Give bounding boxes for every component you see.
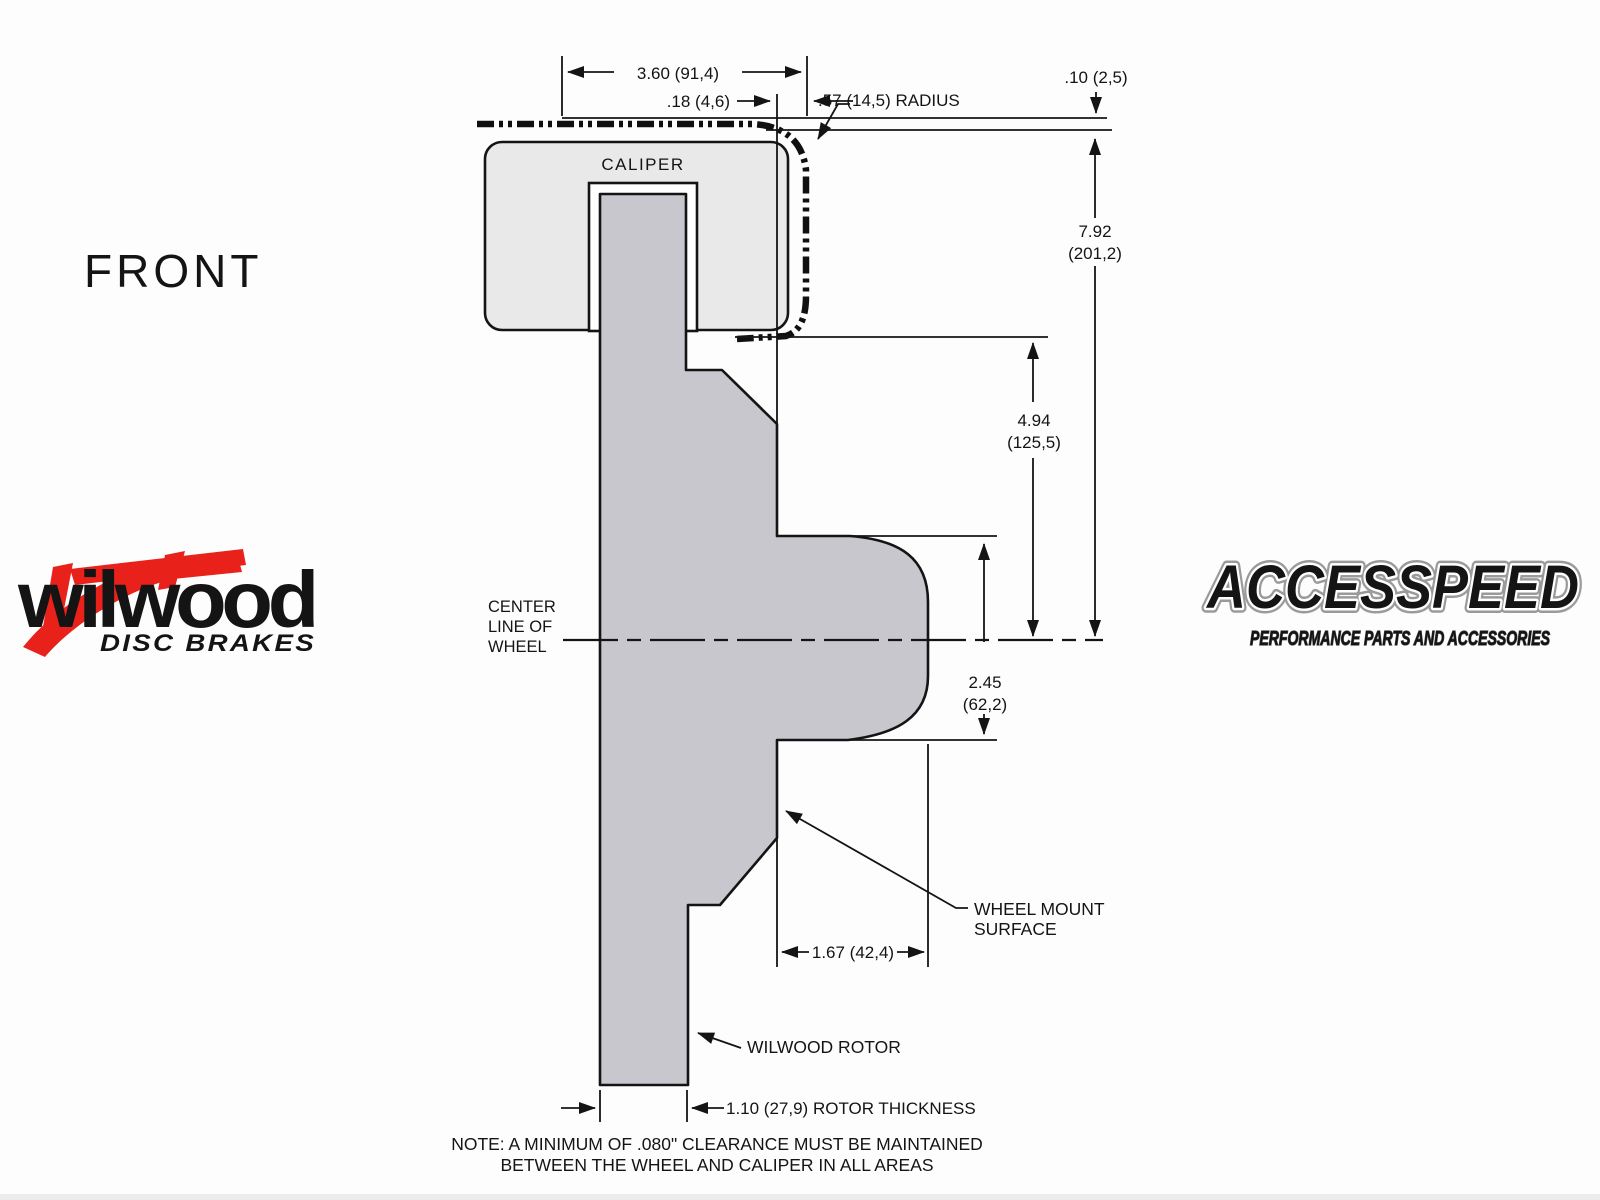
centerline-label-3: WHEEL (488, 638, 547, 656)
note-line-2: BETWEEN THE WHEEL AND CALIPER IN ALL ARE… (500, 1155, 933, 1175)
centerline-label-2: LINE OF (488, 618, 552, 636)
wheel-mount-leader (786, 811, 968, 908)
centerline-label-1: CENTER (488, 598, 556, 616)
bottom-edge-strip (0, 1194, 1600, 1200)
dim-2-45-mm: (62,2) (963, 695, 1007, 714)
dim-2-45-in: 2.45 (968, 673, 1001, 692)
wilwood-logo: wilwood DISC BRAKES (17, 549, 316, 657)
wheel-mount-label-2: SURFACE (974, 919, 1057, 939)
dim-0-57-text: .57 (14,5) RADIUS (818, 91, 960, 110)
rotor-leader (698, 1033, 741, 1048)
wilwood-tagline: DISC BRAKES (100, 630, 316, 657)
accesspeed-tagline: PERFORMANCE PARTS AND ACCESSORIES (1250, 628, 1550, 650)
caliper-label: CALIPER (601, 155, 684, 174)
dim-7-92-in: 7.92 (1078, 222, 1111, 241)
dim-0-18-text: .18 (4,6) (667, 92, 730, 111)
dim-0-10-text: .10 (2,5) (1064, 68, 1127, 87)
note-line-1: NOTE: A MINIMUM OF .080" CLEARANCE MUST … (451, 1134, 983, 1154)
accesspeed-logo: ACCESSPEED ACCESSPEED PERFORMANCE PARTS … (1205, 553, 1579, 650)
dim-1-10-text: 1.10 (27,9) ROTOR THICKNESS (726, 1099, 976, 1118)
dim-7-92-mm: (201,2) (1068, 244, 1122, 263)
dim-4-94-in: 4.94 (1017, 411, 1050, 430)
wheel-mount-label-1: WHEEL MOUNT (974, 899, 1105, 919)
dim-1-67-text: 1.67 (42,4) (812, 943, 894, 962)
accesspeed-wordmark: ACCESSPEED (1205, 553, 1579, 621)
cross-section-drawing: CALIPER CENTER LINE OF WHEEL 3.60 (91,4)… (451, 56, 1127, 1175)
dim-3-60-text: 3.60 (91,4) (637, 64, 719, 83)
brake-diagram: FRONT CALIPER CENTER LINE OF WHEEL (0, 0, 1600, 1200)
rotor-label: WILWOOD ROTOR (747, 1037, 901, 1057)
dim-4-94-mm: (125,5) (1007, 433, 1061, 452)
front-view-label: FRONT (84, 245, 262, 297)
